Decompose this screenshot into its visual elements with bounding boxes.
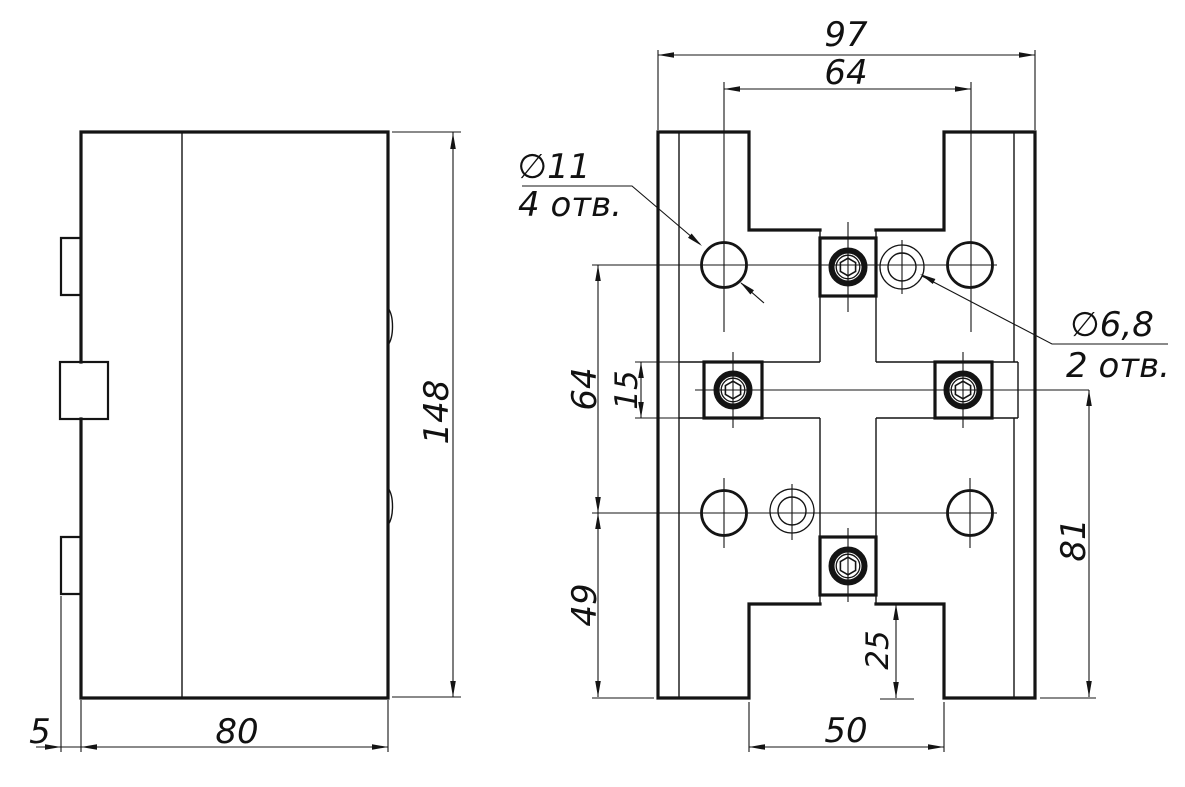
dim-15: 15 xyxy=(609,370,645,409)
dim-148: 148 xyxy=(417,380,457,445)
dim-81: 81 xyxy=(1054,518,1094,561)
label-dia11: ∅11 xyxy=(518,147,591,187)
side-view-outline xyxy=(81,132,388,698)
side-view-bottom-tab xyxy=(61,537,81,594)
front-view-outline-left xyxy=(658,132,820,698)
front-view xyxy=(592,82,1089,698)
dim-50: 50 xyxy=(824,711,867,751)
hole-callouts: ∅11 4 отв. ∅6,8 2 отв. xyxy=(518,147,1170,386)
side-view-top-tab xyxy=(61,238,81,295)
drawing-sheet: 148 5 80 xyxy=(0,0,1185,787)
label-dia11-qty: 4 отв. xyxy=(518,185,622,225)
label-dia68: ∅6,8 xyxy=(1070,305,1154,345)
dim-5: 5 xyxy=(29,712,51,752)
front-view-outline-right xyxy=(876,132,1035,698)
dim-25: 25 xyxy=(860,630,896,669)
front-view-dimensions: 97 64 64 49 15 81 25 50 xyxy=(565,15,1096,752)
dim-64-top: 64 xyxy=(824,53,867,93)
side-view xyxy=(60,132,393,698)
technical-drawing: 148 5 80 xyxy=(0,0,1185,787)
side-view-middle-tab xyxy=(60,362,108,419)
dim-80: 80 xyxy=(215,712,258,752)
dim-64-left: 64 xyxy=(565,367,605,410)
label-dia68-qty: 2 отв. xyxy=(1066,346,1170,386)
side-view-dimensions: 148 5 80 xyxy=(29,132,461,752)
dim-49: 49 xyxy=(565,583,605,626)
front-view-step-lines xyxy=(679,132,1014,698)
dim-97: 97 xyxy=(824,15,868,55)
